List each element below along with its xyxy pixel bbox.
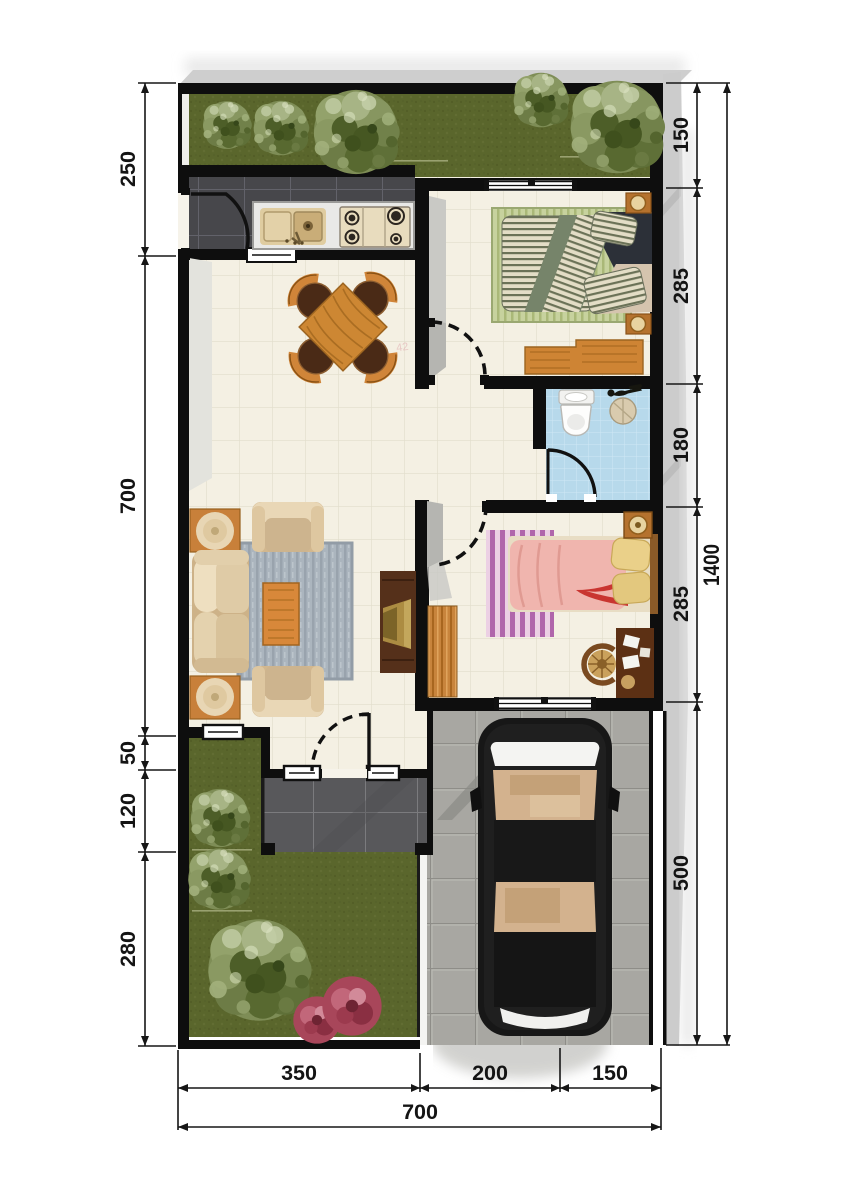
- svg-text:350: 350: [281, 1061, 317, 1085]
- svg-text:150: 150: [592, 1061, 628, 1085]
- svg-text:280: 280: [116, 931, 140, 967]
- svg-text:180: 180: [669, 427, 693, 463]
- svg-text:1400: 1400: [699, 544, 724, 586]
- svg-text:700: 700: [402, 1100, 438, 1124]
- svg-text:500: 500: [669, 855, 693, 891]
- svg-text:120: 120: [116, 793, 140, 829]
- svg-text:200: 200: [472, 1061, 508, 1085]
- svg-text:250: 250: [116, 151, 140, 187]
- svg-text:700: 700: [116, 478, 140, 514]
- svg-text:285: 285: [669, 586, 693, 622]
- svg-text:150: 150: [669, 117, 693, 153]
- svg-text:285: 285: [669, 268, 693, 304]
- svg-text:42: 42: [395, 341, 409, 355]
- svg-text:50: 50: [116, 741, 140, 765]
